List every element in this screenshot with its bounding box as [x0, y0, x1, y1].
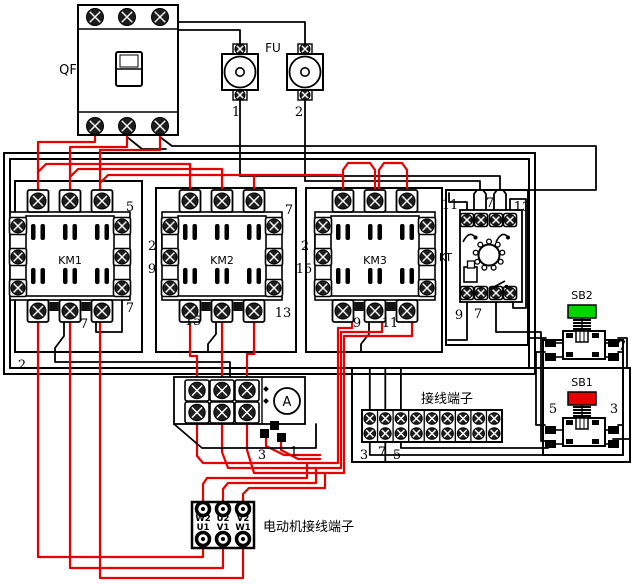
contactor-km3: KM3: [315, 190, 436, 322]
button-terminal: [545, 339, 556, 347]
motor-pin-label: U1: [197, 523, 210, 533]
button-terminal: [545, 353, 556, 361]
wire-number-label: 2: [18, 358, 26, 373]
wire-number-label: 11: [382, 316, 399, 331]
wiring-diagram-page: QFFUKM1KM2KM3KTSB2SB1接线端子W2U2V2U1V1W1电动机…: [0, 0, 640, 588]
wire-number-label: 7: [126, 301, 134, 316]
fuse-2: [287, 44, 323, 100]
terminal-strip: 接线端子: [362, 391, 502, 442]
wire-number-label: 3: [360, 448, 368, 463]
ct-terminal: [260, 429, 269, 438]
terminal-strip-label: 接线端子: [421, 391, 473, 407]
wire-number-label: 5: [126, 200, 134, 215]
fu-label: FU: [265, 41, 281, 55]
sb1-label: SB1: [571, 376, 593, 389]
qf-toggle-handle: [116, 52, 142, 86]
kt-coil: [464, 267, 477, 282]
motor-control-wiring-diagram: QFFUKM1KM2KM3KTSB2SB1接线端子W2U2V2U1V1W1电动机…: [0, 0, 640, 588]
fuse-group-fu: FU: [222, 41, 323, 100]
contactor-km1: KM1: [10, 190, 131, 322]
wire-number-label: 2: [301, 239, 309, 254]
aux-terminal: [234, 302, 243, 311]
wire-number-label: 1: [290, 445, 298, 460]
wire-number-label: 2: [148, 239, 156, 254]
button-terminal: [545, 440, 556, 448]
button-terminal: [608, 440, 619, 448]
contactor-label: KM2: [210, 254, 234, 267]
wire-number-label: 3: [610, 402, 618, 417]
motor-terminal-block: W2U2V2U1V1W1电动机接线端子: [192, 502, 354, 548]
wire-number-label: 7: [378, 445, 386, 460]
contactor-label: KM1: [58, 254, 82, 267]
wire-number-label: 9: [148, 262, 156, 277]
kt-dial: [479, 245, 500, 266]
wire-number-label: 7: [285, 203, 293, 218]
time-relay-kt: KT: [439, 210, 522, 302]
motor-block-label: 电动机接线端子: [263, 519, 354, 535]
wire-number-label: 5: [393, 448, 401, 463]
sb2-label: SB2: [571, 289, 593, 302]
fuse-1: [222, 44, 258, 100]
wire-number-label: 13: [514, 200, 531, 215]
ammeter-panel: A: [174, 377, 316, 448]
ct-terminal: [277, 433, 286, 442]
button-terminal: [545, 426, 556, 434]
kt-label: KT: [439, 251, 452, 264]
qf-label: QF: [59, 63, 77, 78]
wire-number-label: 2: [295, 105, 303, 120]
wire-number-label: 3: [258, 448, 266, 463]
button-terminal: [608, 426, 619, 434]
aux-terminal: [387, 302, 396, 311]
wire-number-label: 1: [232, 105, 240, 120]
wire-number-label: 11: [442, 198, 459, 213]
sb2-cap: [568, 305, 596, 318]
wire-number-label: 7: [618, 339, 626, 354]
aux-terminal: [355, 302, 364, 311]
wire-number-label: 7: [474, 307, 482, 322]
contactor-km2: KM2: [162, 190, 283, 322]
circuit-breaker-qf: QF: [59, 5, 178, 135]
push-button-sb2: SB2: [545, 289, 619, 361]
wire-number-label: 9: [455, 308, 463, 323]
aux-terminal: [82, 302, 91, 311]
ammeter-label: A: [283, 395, 292, 410]
wire-number-label: 15: [185, 314, 202, 329]
wire-number-label: 13: [275, 306, 292, 321]
wire-number-label: 7: [80, 317, 88, 332]
contactor-label: KM3: [363, 254, 387, 267]
ct-terminal: [270, 421, 279, 430]
wire-number-label: 15: [296, 262, 313, 277]
wire-number-label: 7: [486, 196, 494, 211]
aux-terminal: [50, 302, 59, 311]
motor-pin-label: V1: [217, 523, 230, 533]
wire-number-label: 5: [549, 402, 557, 417]
wire-number-label: 9: [353, 316, 361, 331]
button-terminal: [608, 353, 619, 361]
aux-terminal: [202, 302, 211, 311]
motor-pin-label: W1: [235, 523, 250, 533]
sb1-cap: [568, 392, 596, 405]
